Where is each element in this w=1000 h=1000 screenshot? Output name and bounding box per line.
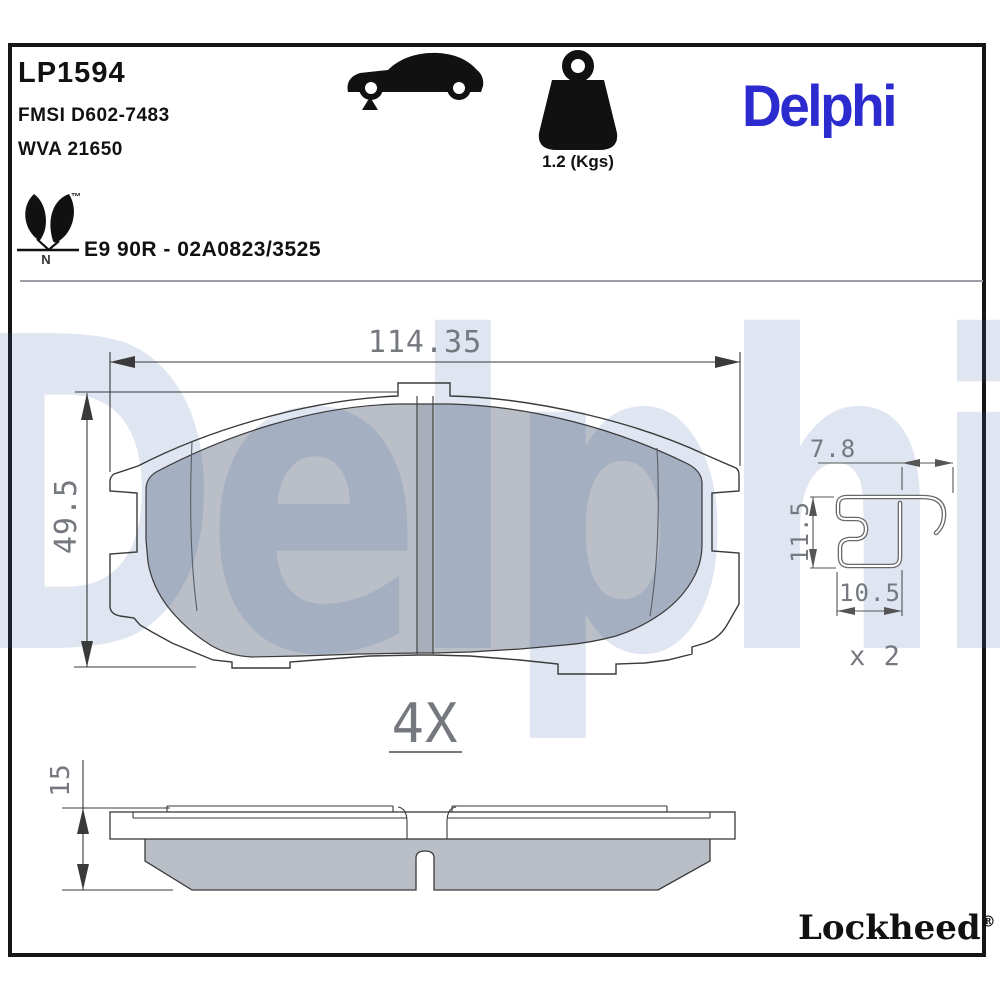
clip-bottom-value: 10.5 <box>839 579 901 607</box>
registered-symbol: ® <box>981 913 996 931</box>
pad-quantity-label: 4X <box>389 692 462 755</box>
pad-quantity-value: 4X <box>391 692 458 755</box>
clip-quantity-label: x 2 <box>849 641 901 672</box>
front-height-value: 49.5 <box>49 478 84 554</box>
lockheed-wordmark: Lockheed <box>798 908 981 948</box>
thickness-value: 15 <box>46 763 76 796</box>
clip-top-value: 7.8 <box>810 435 856 463</box>
clip-height-value: 11.5 <box>786 501 814 563</box>
technical-drawing: Delphi 114.35 49.5 15 4X <box>0 0 1000 1000</box>
lockheed-logo: Lockheed® <box>798 908 996 948</box>
front-width-value: 114.35 <box>368 325 482 360</box>
